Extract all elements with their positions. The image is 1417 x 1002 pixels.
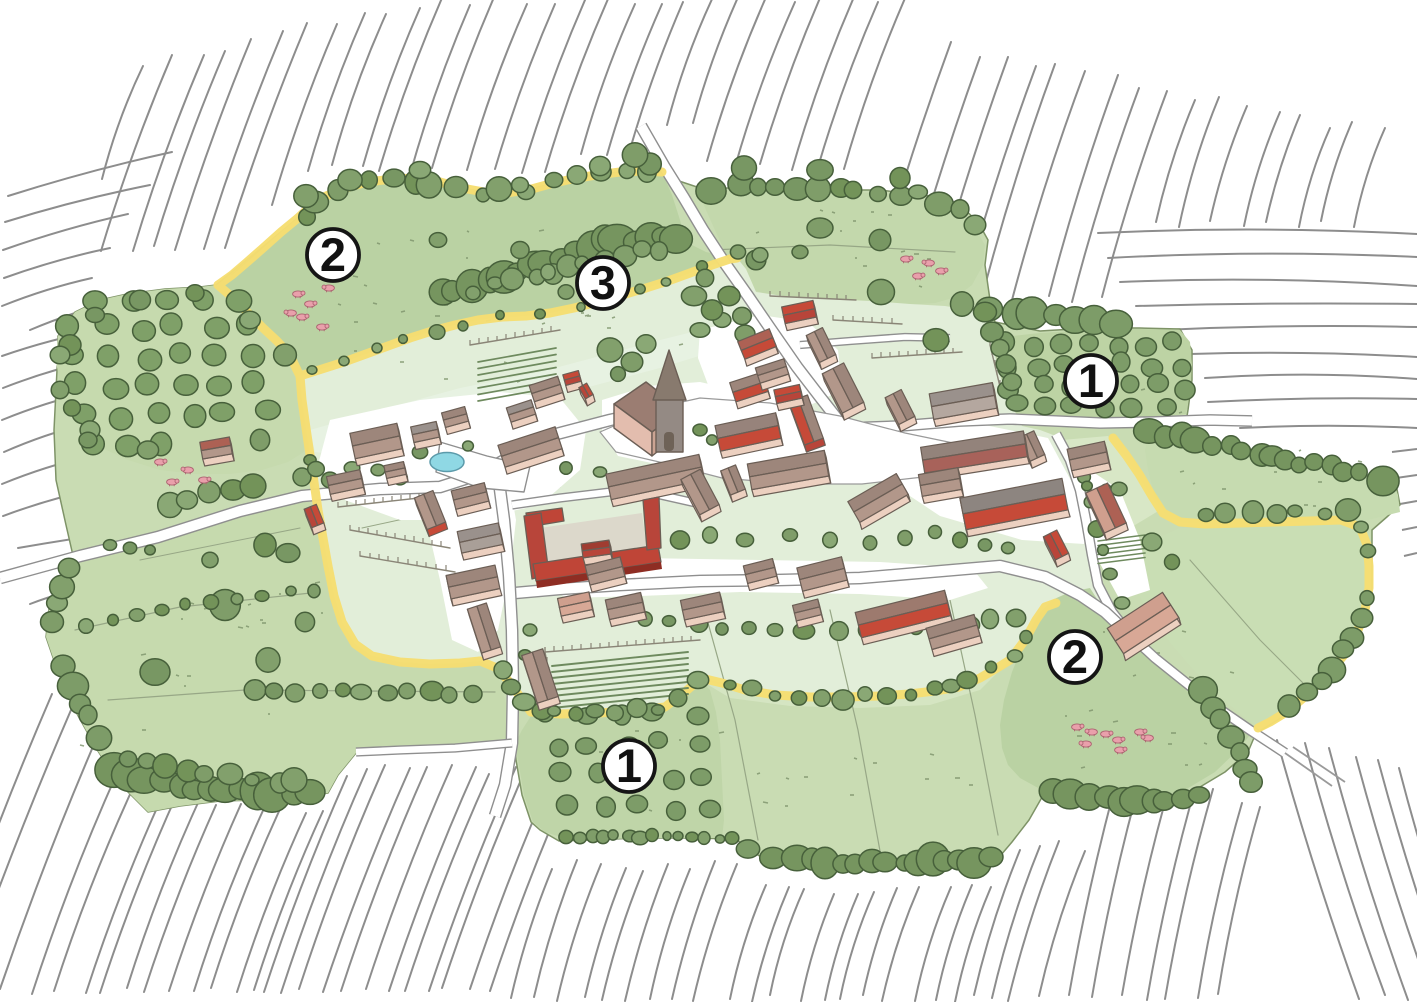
svg-text:3: 3 (590, 256, 616, 309)
svg-text:1: 1 (616, 739, 642, 792)
svg-text:2: 2 (1062, 630, 1088, 683)
svg-text:2: 2 (320, 228, 346, 281)
svg-text:1: 1 (1078, 354, 1104, 407)
